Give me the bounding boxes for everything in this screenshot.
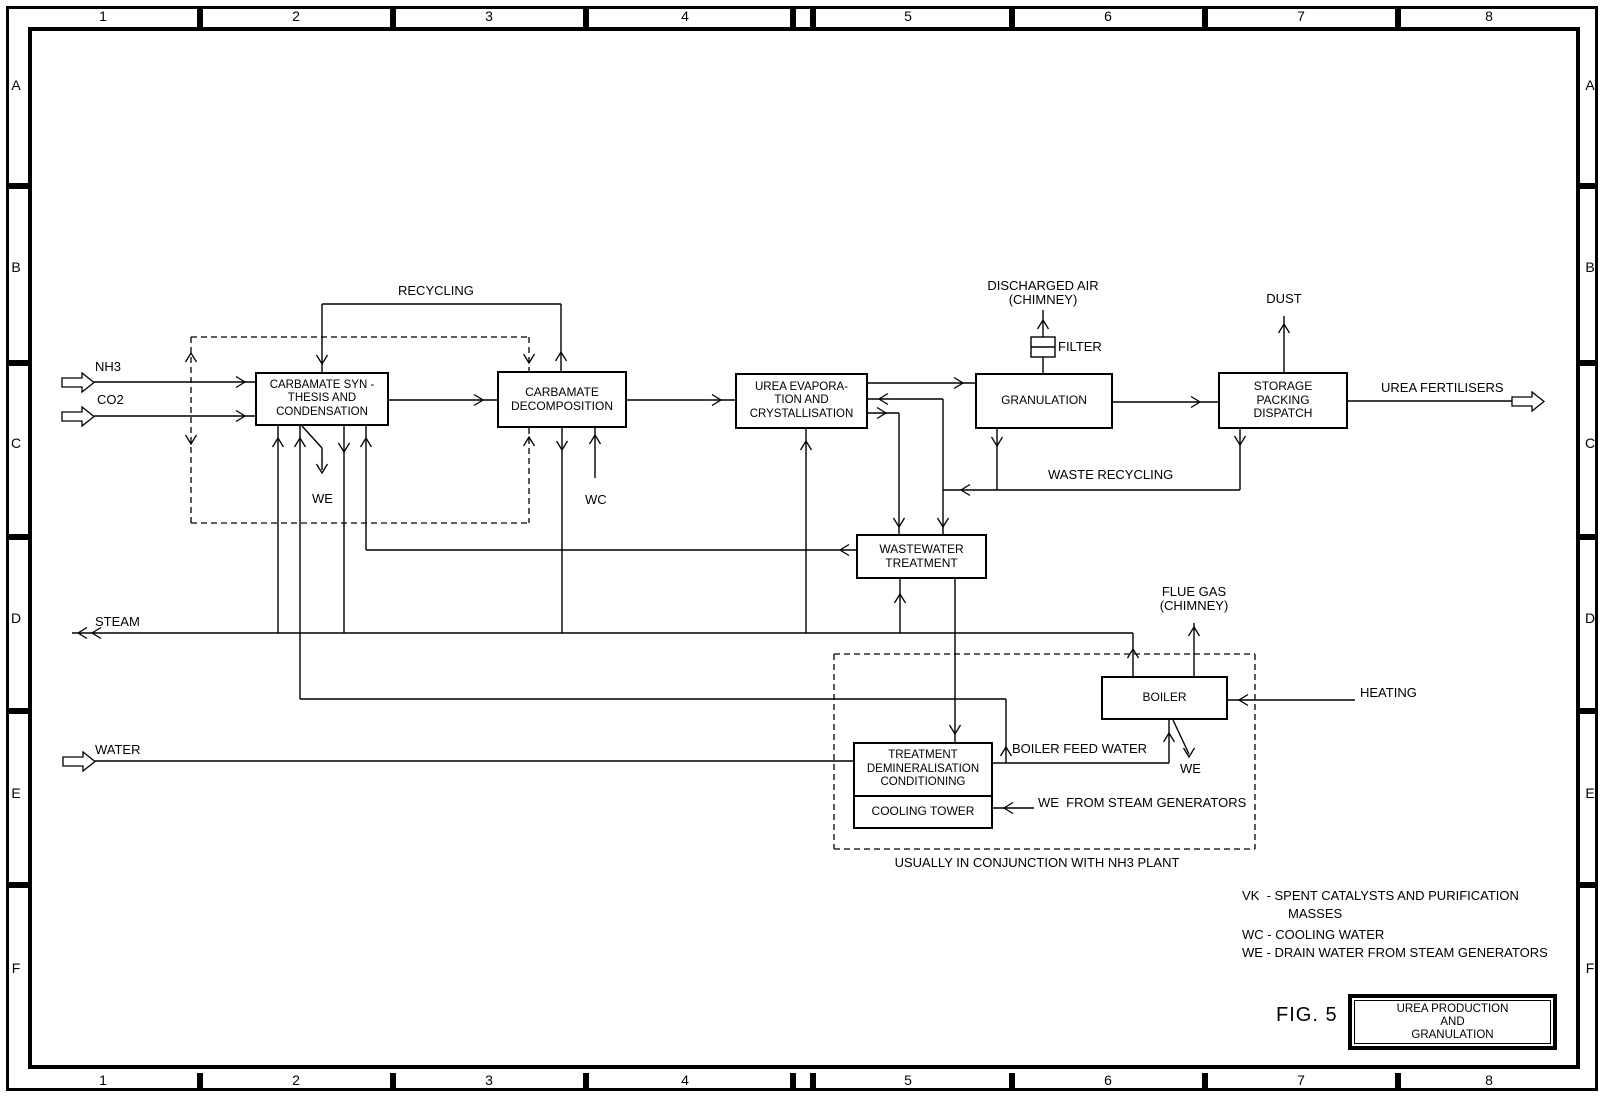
grid-col-label-bottom: 6 [1088,1072,1128,1088]
grid-col-label-top: 7 [1281,8,1321,24]
grid-tick-top [790,9,796,27]
label-discharged-air-chimney: (CHIMNEY) [978,293,1108,307]
label-conjunction-note: USUALLY IN CONJUNCTION WITH NH3 PLANT [822,856,1252,870]
grid-tick-top [1009,9,1015,27]
grid-tick-bottom [1395,1073,1401,1091]
grid-tick-bottom [197,1073,203,1091]
grid-col-label-top: 4 [665,8,705,24]
grid-col-label-top: 6 [1088,8,1128,24]
box-cooling-tower: COOLING TOWER [853,795,993,829]
grid-col-label-bottom: 2 [276,1072,316,1088]
grid-row-label-right: D [1582,610,1598,626]
grid-tick-right [1580,882,1598,888]
label-flue-gas-chimney: (CHIMNEY) [1129,599,1259,613]
grid-row-label-right: F [1582,960,1598,976]
grid-tick-right [1580,360,1598,366]
grid-col-label-top: 2 [276,8,316,24]
drawing-sheet: 1122334455667788AABBCCDDEEFF CARBAMATE S… [0,0,1607,1100]
grid-col-label-top: 8 [1469,8,1509,24]
label-water: WATER [95,743,141,757]
grid-row-label-right: E [1582,785,1598,801]
grid-tick-bottom [1202,1073,1208,1091]
grid-col-label-bottom: 1 [83,1072,123,1088]
label-we-synthesis: WE [312,492,333,506]
grid-row-label-left: D [8,610,24,626]
grid-col-label-bottom: 7 [1281,1072,1321,1088]
grid-tick-right [1580,183,1598,189]
grid-tick-bottom [583,1073,589,1091]
label-we-from-steam-generators: WE FROM STEAM GENERATORS [1038,796,1246,810]
label-nh3: NH3 [95,360,121,374]
grid-col-label-top: 3 [469,8,509,24]
inner-border [28,27,1580,1069]
grid-row-label-left: F [8,960,24,976]
grid-tick-top [197,9,203,27]
box-boiler: BOILER [1101,676,1228,720]
box-carbamate-synthesis: CARBAMATE SYN - THESIS AND CONDENSATION [255,372,389,426]
grid-col-label-bottom: 5 [888,1072,928,1088]
label-waste-recycling: WASTE RECYCLING [1048,468,1173,482]
grid-tick-top [1395,9,1401,27]
label-flue-gas: FLUE GAS [1129,585,1259,599]
box-carbamate-decomposition: CARBAMATE DECOMPOSITION [497,371,627,428]
grid-tick-left [9,360,28,366]
grid-tick-bottom [790,1073,796,1091]
label-recycling: RECYCLING [398,284,474,298]
grid-tick-bottom [810,1073,816,1091]
grid-tick-top [390,9,396,27]
legend-row-vk-cont: MASSES [1288,907,1342,921]
grid-tick-left [9,882,28,888]
grid-col-label-bottom: 4 [665,1072,705,1088]
label-filter: FILTER [1058,340,1102,354]
grid-row-label-left: B [8,259,24,275]
label-discharged-air: DISCHARGED AIR [978,279,1108,293]
grid-tick-bottom [1009,1073,1015,1091]
grid-row-label-right: C [1582,435,1598,451]
legend-row-we: WE - DRAIN WATER FROM STEAM GENERATORS [1242,946,1548,960]
grid-row-label-right: A [1582,77,1598,93]
grid-row-label-right: B [1582,259,1598,275]
grid-tick-top [583,9,589,27]
legend-row-vk: VK - SPENT CATALYSTS AND PURIFICATION [1242,889,1519,903]
box-urea-evaporation: UREA EVAPORA- TION AND CRYSTALLISATION [735,373,868,429]
label-boiler-feed-water: BOILER FEED WATER [1012,742,1147,756]
box-granulation: GRANULATION [975,373,1113,429]
grid-col-label-bottom: 8 [1469,1072,1509,1088]
grid-col-label-top: 1 [83,8,123,24]
legend-row-wc: WC - COOLING WATER [1242,928,1384,942]
grid-col-label-bottom: 3 [469,1072,509,1088]
grid-tick-right [1580,708,1598,714]
box-storage-packing-dispatch: STORAGE PACKING DISPATCH [1218,372,1348,429]
label-heating: HEATING [1360,686,1417,700]
box-wastewater-treatment: WASTEWATER TREATMENT [856,534,987,579]
grid-tick-left [9,534,28,540]
label-dust: DUST [1261,292,1307,306]
title-block-text: UREA PRODUCTION AND GRANULATION [1354,1000,1551,1044]
grid-row-label-left: C [8,435,24,451]
grid-tick-right [1580,534,1598,540]
grid-tick-top [1202,9,1208,27]
grid-tick-left [9,183,28,189]
title-block: UREA PRODUCTION AND GRANULATION [1348,994,1557,1050]
grid-tick-bottom [390,1073,396,1091]
label-wc-decomposition: WC [585,493,607,507]
grid-tick-left [9,708,28,714]
box-water-treatment: TREATMENT DEMINERALISATION CONDITIONING [853,742,993,797]
grid-row-label-left: A [8,77,24,93]
grid-col-label-top: 5 [888,8,928,24]
label-urea-fertilisers: UREA FERTILISERS [1381,381,1504,395]
label-we-boiler: WE [1180,762,1201,776]
grid-tick-top [810,9,816,27]
figure-number: FIG. 5 [1276,1004,1338,1027]
grid-row-label-left: E [8,785,24,801]
label-co2: CO2 [97,393,124,407]
label-steam: STEAM [95,615,140,629]
